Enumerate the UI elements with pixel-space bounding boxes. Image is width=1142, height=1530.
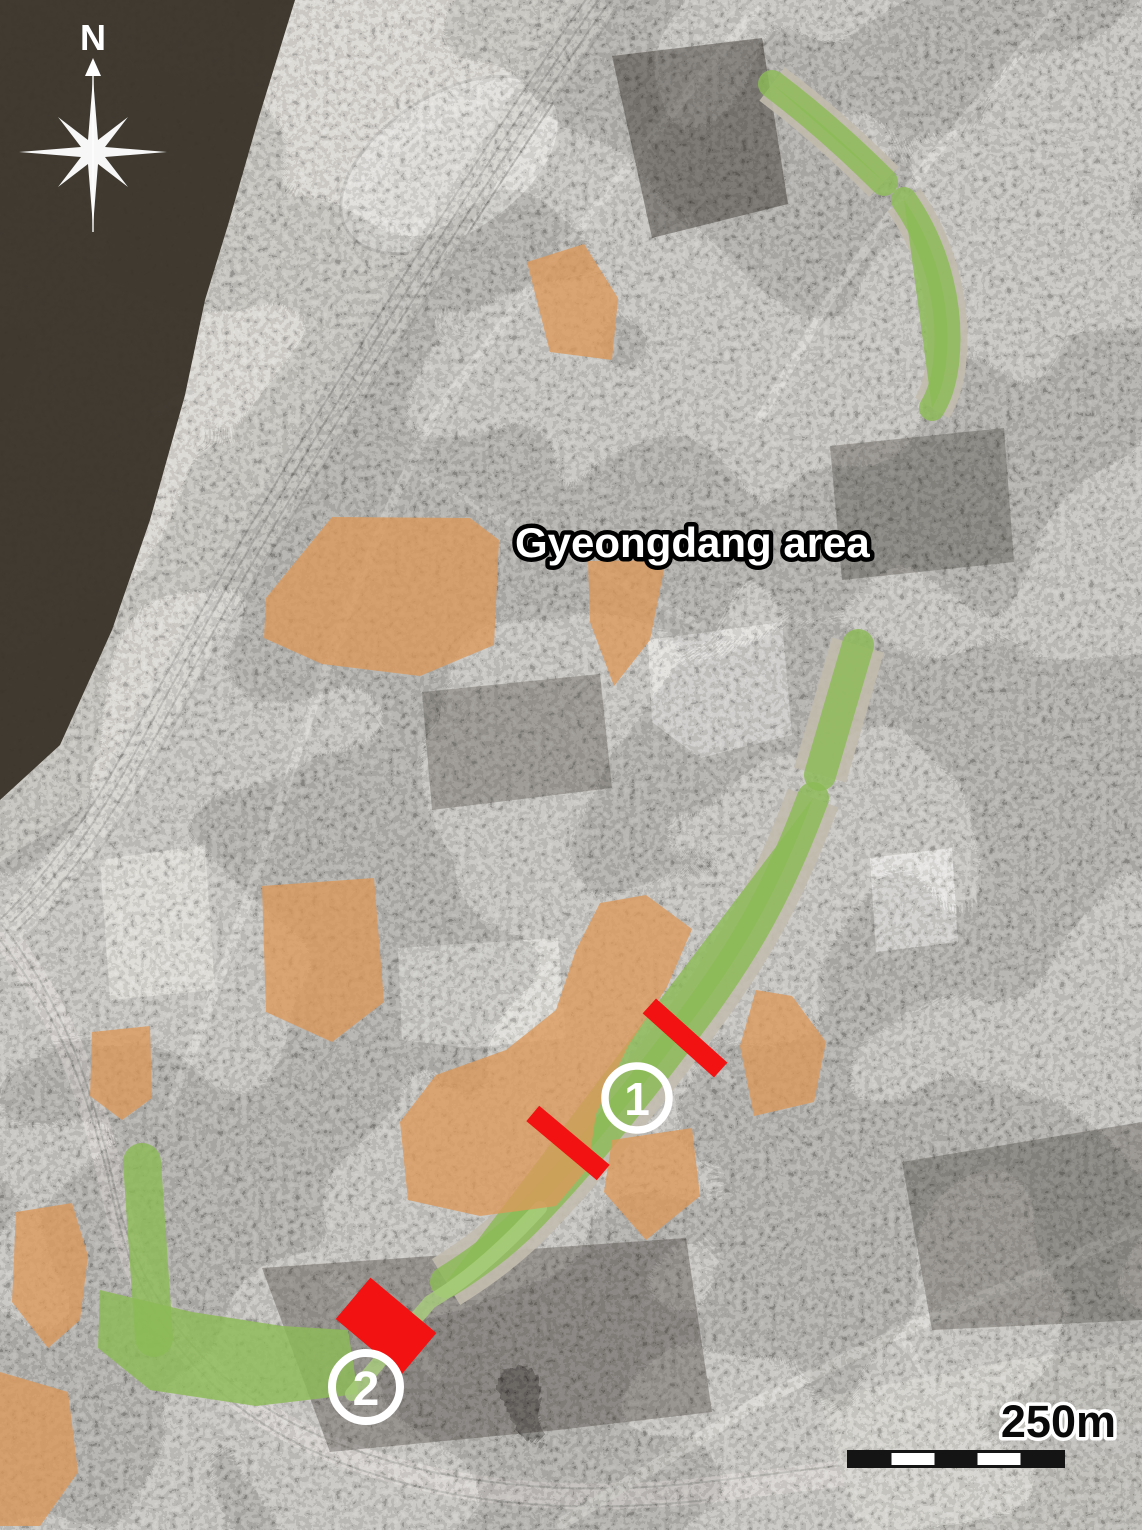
scale-bar-segment xyxy=(935,1452,978,1467)
scale-bar-segment xyxy=(849,1452,892,1467)
north-label: N xyxy=(80,17,106,58)
aerial-photo-canvas: 1 2 Gyeongdang area N 250m xyxy=(0,0,1142,1530)
scale-label: 250m xyxy=(1001,1396,1116,1447)
scale-bar-segment xyxy=(1021,1452,1064,1467)
aerial-photo-base xyxy=(0,0,1142,1530)
region-label: Gyeongdang area xyxy=(515,519,870,566)
marker-1-number: 1 xyxy=(624,1073,650,1125)
aerial-map-figure: 1 2 Gyeongdang area N 250m xyxy=(0,0,1142,1530)
marker-2-number: 2 xyxy=(353,1363,380,1416)
